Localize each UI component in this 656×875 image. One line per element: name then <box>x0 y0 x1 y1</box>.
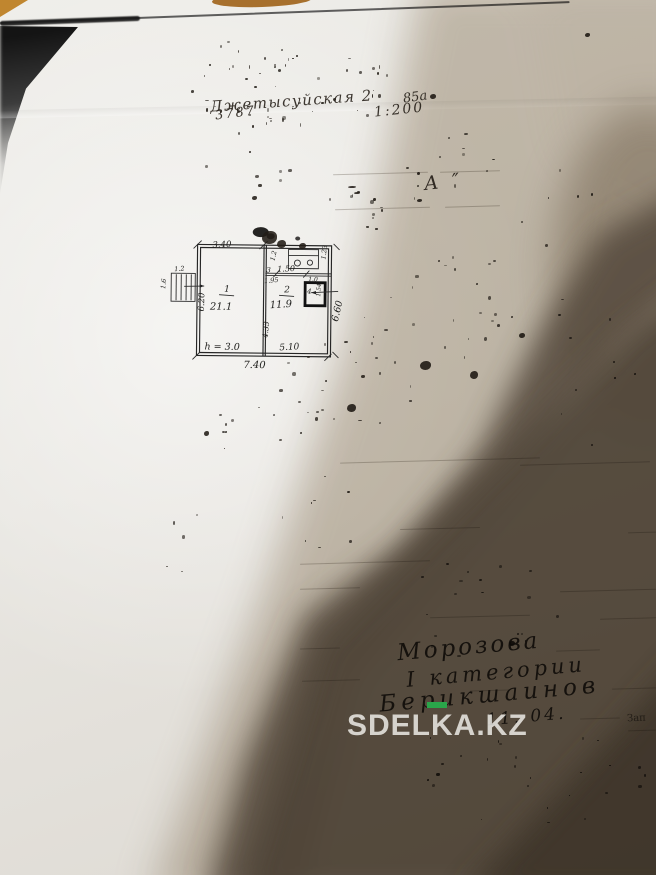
dim-154: 1.54 <box>315 283 323 297</box>
room4-label: 4 <box>306 288 312 296</box>
corner-form-text: Зап <box>627 713 646 725</box>
dim-r3w: 1.50 <box>277 264 295 274</box>
dim-porch-top: 1.2 <box>174 264 185 273</box>
room2-area: 11.9 <box>269 299 293 311</box>
floor-plan: 3.40 6.20 1 21.1 h = 3.0 7.40 4.33 5.10 … <box>147 225 349 382</box>
photographed-document: Джетысуйская 2 3787 85а 1:200 А ″ <box>0 0 656 875</box>
dim-10: 1.0 <box>308 276 318 283</box>
dim-right: 6.60 <box>330 300 345 323</box>
dim-height: h = 3.0 <box>204 342 239 353</box>
dim-left: 6.20 <box>197 292 208 312</box>
dim-top: 3.40 <box>212 240 232 251</box>
dim-r3r: 1.23 <box>320 245 330 260</box>
dim-porch-side: 1.6 <box>159 278 168 289</box>
porch-arrow <box>200 284 205 288</box>
paper-background <box>0 0 656 875</box>
room3-label: 3 <box>266 266 271 274</box>
handwritten-mark-a: А ″ <box>423 169 465 195</box>
watermark-green-badge <box>427 702 447 708</box>
room2-label: 2 <box>283 285 290 295</box>
room1-area: 21.1 <box>209 302 232 313</box>
dim-r2h: 4.33 <box>261 321 271 340</box>
dim-r3h: 1.2 <box>269 250 279 262</box>
room1-label: 1 <box>224 285 230 295</box>
dim-r2w: 5.10 <box>279 342 300 353</box>
dim-195: 1.95 <box>264 276 279 285</box>
dim-bottom: 7.40 <box>243 360 266 371</box>
watermark-text: SDELKA.KZ <box>347 709 528 743</box>
